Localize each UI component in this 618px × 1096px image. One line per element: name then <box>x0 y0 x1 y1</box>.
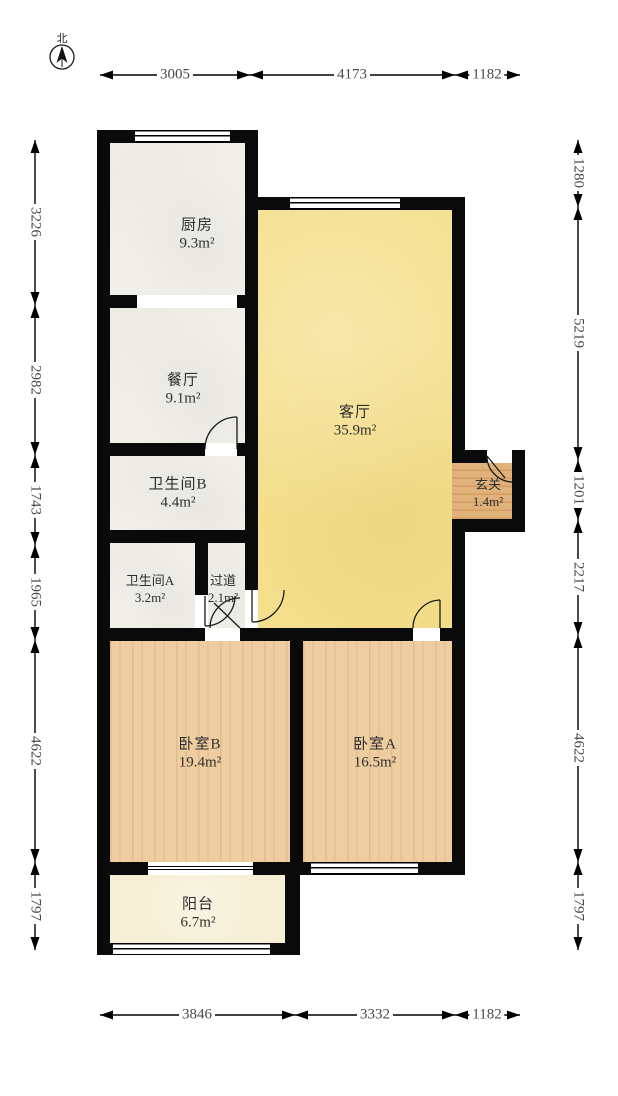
dimension-lines <box>35 75 578 1015</box>
bedroom-a-label: 卧室A 16.5m² <box>353 733 397 772</box>
living-area: 35.9m² <box>334 423 376 440</box>
balcony-area: 6.7m² <box>181 915 216 932</box>
dim-bottom-2: 1182 <box>469 1007 504 1024</box>
dim-right-1: 5219 <box>570 315 587 351</box>
dim-right-2: 1201 <box>570 472 587 508</box>
dim-left-5: 1797 <box>27 888 44 924</box>
entry-label: 玄关 1.4m² <box>473 474 503 510</box>
balcony-name: 阳台 <box>182 893 214 914</box>
bedroom-b-label: 卧室B 19.4m² <box>178 733 221 772</box>
bedroom-b-area: 19.4m² <box>179 755 221 772</box>
bathroom-a-area: 3.2m² <box>135 590 165 606</box>
dim-right-3: 2217 <box>570 559 587 595</box>
floorplan: 北 厨房 9.3m² 餐厅 9.1m² 客厅 35.9m² 卫生间B 4.4m²… <box>0 0 618 1096</box>
dim-right-5: 1797 <box>570 888 587 924</box>
plan-overlay <box>0 0 618 1096</box>
hall-living-door-arc <box>252 590 284 622</box>
dim-top-0: 3005 <box>157 67 193 84</box>
dim-left-4: 4622 <box>27 733 44 769</box>
dim-top-1: 4173 <box>334 67 370 84</box>
compass-icon <box>50 45 74 69</box>
hallway-name: 过道 <box>210 570 236 589</box>
dim-top-2: 1182 <box>469 67 504 84</box>
dim-left-3: 1965 <box>27 574 44 610</box>
balcony-label: 阳台 6.7m² <box>181 893 216 932</box>
entry-area: 1.4m² <box>473 494 503 510</box>
hallway-area: 2.1m² <box>208 590 238 606</box>
dim-left-0: 3226 <box>27 204 44 240</box>
dim-bottom-0: 3846 <box>179 1007 215 1024</box>
dining-name: 餐厅 <box>167 369 199 390</box>
dining-label: 餐厅 9.1m² <box>166 369 201 408</box>
dim-right-0: 1280 <box>570 155 587 191</box>
dim-right-4: 4622 <box>570 730 587 766</box>
bedroom-a-area: 16.5m² <box>354 755 396 772</box>
bedroom-b-name: 卧室B <box>178 733 221 754</box>
dim-left-2: 1743 <box>27 482 44 518</box>
kitchen-name: 厨房 <box>181 214 213 235</box>
entry-name: 玄关 <box>475 474 501 493</box>
dining-door-arc <box>205 417 237 449</box>
bedroom-b-door-leaf <box>214 603 240 628</box>
bathroom-a-name: 卫生间A <box>126 570 174 589</box>
dining-area: 9.1m² <box>166 391 201 408</box>
kitchen-label: 厨房 9.3m² <box>180 214 215 253</box>
bedroom-a-door-arc <box>413 600 440 628</box>
dim-left-1: 2982 <box>27 362 44 398</box>
dimension-arrowheads <box>31 71 583 1020</box>
living-label: 客厅 35.9m² <box>334 401 376 440</box>
bathroom-b-label: 卫生间B 4.4m² <box>148 473 207 512</box>
bathroom-a-label: 卫生间A 3.2m² <box>126 570 174 606</box>
bathroom-b-area: 4.4m² <box>161 495 196 512</box>
kitchen-area: 9.3m² <box>180 236 215 253</box>
hallway-label: 过道 2.1m² <box>208 570 238 606</box>
bedroom-a-name: 卧室A <box>353 733 397 754</box>
living-name: 客厅 <box>339 401 371 422</box>
bathroom-b-name: 卫生间B <box>148 473 207 494</box>
dim-bottom-1: 3332 <box>357 1007 393 1024</box>
